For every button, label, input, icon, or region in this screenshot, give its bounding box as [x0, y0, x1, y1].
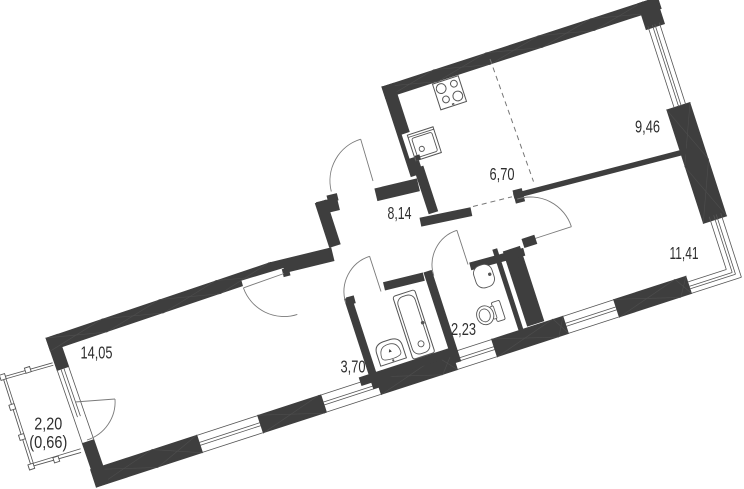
svg-text:(0,66): (0,66)	[29, 432, 67, 452]
svg-text:11,41: 11,41	[670, 243, 699, 263]
svg-text:2,20: 2,20	[34, 414, 62, 434]
svg-text:9,46: 9,46	[635, 117, 660, 137]
svg-text:6,70: 6,70	[490, 164, 515, 184]
svg-text:14,05: 14,05	[81, 343, 113, 363]
svg-text:2,23: 2,23	[451, 319, 476, 339]
svg-text:8,14: 8,14	[388, 203, 412, 223]
svg-text:3,70: 3,70	[341, 357, 366, 377]
